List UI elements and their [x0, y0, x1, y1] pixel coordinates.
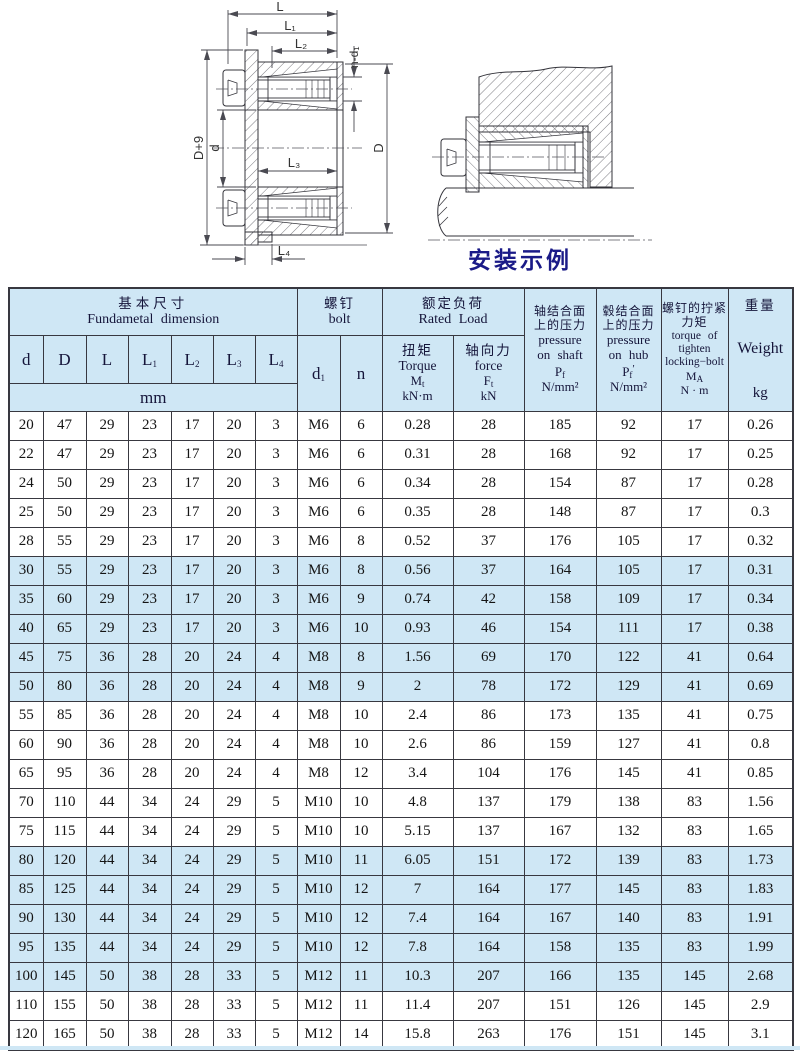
cell: 0.31: [728, 557, 793, 586]
cell: 20: [213, 441, 255, 470]
cell: 75: [9, 818, 43, 847]
dim-label-L3: L₃: [288, 155, 301, 170]
header-tightening-torque: 螺钉的拧紧 力矩 torque of tighten locking−bolt …: [661, 288, 728, 412]
cell: 44: [86, 847, 128, 876]
cell: 29: [86, 470, 128, 499]
unit-mm: mm: [9, 384, 297, 412]
cell: 29: [86, 441, 128, 470]
cell: 17: [661, 528, 728, 557]
header-pressure-on-hub: 毂结合面 上的压力 pressure on hub Pf′ N/mm²: [596, 288, 661, 412]
cell: 28: [453, 499, 524, 528]
table-row: 95135443424295M10127.8164158135831.99: [9, 934, 793, 963]
cell: 164: [524, 557, 596, 586]
cell: 137: [453, 789, 524, 818]
cell: 17: [661, 557, 728, 586]
cell: 29: [86, 412, 128, 441]
cell: 5: [255, 905, 297, 934]
cell: 8: [340, 644, 382, 673]
cell: 20: [213, 586, 255, 615]
cell: 23: [128, 441, 171, 470]
cell: 105: [596, 528, 661, 557]
cell: 11: [340, 963, 382, 992]
cell: 132: [596, 818, 661, 847]
cell: 154: [524, 470, 596, 499]
cell: 29: [213, 905, 255, 934]
dim-label-D9: D+9: [191, 136, 206, 160]
cell: 173: [524, 702, 596, 731]
cell: 12: [340, 934, 382, 963]
cell: 148: [524, 499, 596, 528]
col-n: n: [340, 336, 382, 412]
cell: 95: [9, 934, 43, 963]
cell: 1.83: [728, 876, 793, 905]
cell: 2.9: [728, 992, 793, 1021]
table-row: 2550292317203M660.352814887170.3: [9, 499, 793, 528]
cell: 87: [596, 470, 661, 499]
cell: 3: [255, 557, 297, 586]
cell: 129: [596, 673, 661, 702]
cell: 17: [171, 412, 213, 441]
header-rated-load: 额定负荷 Rated Load: [382, 288, 524, 336]
cell: 3: [255, 586, 297, 615]
cell: M6: [297, 586, 340, 615]
cell: 4: [255, 702, 297, 731]
cell: 83: [661, 905, 728, 934]
installation-example-caption: 安装示例: [440, 241, 600, 275]
cell: 172: [524, 673, 596, 702]
cell: 28: [128, 702, 171, 731]
table-row: 85125443424295M10127164177145831.83: [9, 876, 793, 905]
cell: 24: [171, 905, 213, 934]
cell: 65: [43, 615, 86, 644]
cell: 125: [43, 876, 86, 905]
cell: 3.4: [382, 760, 453, 789]
cell: 33: [213, 992, 255, 1021]
cell: 41: [661, 673, 728, 702]
table-row: 5585362820244M8102.486173135410.75: [9, 702, 793, 731]
cell: 176: [524, 528, 596, 557]
cell: 29: [86, 586, 128, 615]
cell: 10.3: [382, 963, 453, 992]
cell: 17: [171, 615, 213, 644]
cell: 34: [128, 934, 171, 963]
cell: 12: [340, 876, 382, 905]
cell: M6: [297, 557, 340, 586]
cell: 20: [213, 499, 255, 528]
cell: M10: [297, 789, 340, 818]
cell: 28: [453, 412, 524, 441]
cell: 34: [128, 818, 171, 847]
cell: 28: [128, 644, 171, 673]
cell: 17: [661, 499, 728, 528]
cell: 83: [661, 789, 728, 818]
cell: 29: [213, 847, 255, 876]
cell: 11: [340, 992, 382, 1021]
cell: M8: [297, 731, 340, 760]
cell: 29: [213, 789, 255, 818]
cell: 80: [9, 847, 43, 876]
cell: 29: [213, 876, 255, 905]
cell: 78: [453, 673, 524, 702]
cell: 41: [661, 702, 728, 731]
table-row: 5080362820244M89278172129410.69: [9, 673, 793, 702]
cell: 0.34: [728, 586, 793, 615]
cell: 10: [340, 789, 382, 818]
header-pressure-on-shaft: 轴结合面 上的压力 pressure on shaft Pf N/mm²: [524, 288, 596, 412]
cell: 17: [661, 470, 728, 499]
cell: 8: [340, 528, 382, 557]
cell: 17: [171, 557, 213, 586]
cell: 0.38: [728, 615, 793, 644]
cell: 0.32: [728, 528, 793, 557]
cell: 2.4: [382, 702, 453, 731]
cell: M10: [297, 876, 340, 905]
dim-label-L1: L₁: [284, 18, 296, 33]
cell: 168: [524, 441, 596, 470]
cell: 0.64: [728, 644, 793, 673]
technical-drawings: L L₁ L₂ L₃ L₄ n-d₁ D+9 d D: [0, 0, 800, 287]
cell: 4: [255, 760, 297, 789]
cell: 0.28: [382, 412, 453, 441]
cell: 83: [661, 818, 728, 847]
cell: M6: [297, 615, 340, 644]
dim-label-L2: L₂: [295, 36, 307, 51]
cell: 20: [171, 644, 213, 673]
cell: 29: [213, 934, 255, 963]
cell: 6: [340, 441, 382, 470]
cell: 44: [86, 818, 128, 847]
cell: 11: [340, 847, 382, 876]
cell: 24: [9, 470, 43, 499]
cell: M10: [297, 934, 340, 963]
cell: 20: [9, 412, 43, 441]
cell: 47: [43, 441, 86, 470]
cell: 37: [453, 557, 524, 586]
cell: 95: [43, 760, 86, 789]
cell: 24: [171, 818, 213, 847]
cell: 17: [171, 441, 213, 470]
cell: 120: [43, 847, 86, 876]
cell: 5: [255, 876, 297, 905]
cell: 92: [596, 412, 661, 441]
cell: M8: [297, 673, 340, 702]
cell: 28: [9, 528, 43, 557]
cell: 24: [213, 644, 255, 673]
cell: 110: [43, 789, 86, 818]
cell: 176: [524, 760, 596, 789]
cell: M12: [297, 992, 340, 1021]
cell: 28: [128, 760, 171, 789]
cell: 29: [86, 499, 128, 528]
cell: M8: [297, 760, 340, 789]
cell: 0.85: [728, 760, 793, 789]
cell: 7.8: [382, 934, 453, 963]
cell: 65: [9, 760, 43, 789]
cell: 3: [255, 412, 297, 441]
dim-label-L4: L₄: [278, 243, 291, 258]
cell: 115: [43, 818, 86, 847]
cell: 145: [661, 963, 728, 992]
dim-label-d: d: [207, 144, 222, 151]
cell: 5: [255, 847, 297, 876]
cell: 6: [340, 470, 382, 499]
cell: 1.56: [382, 644, 453, 673]
cell: 10: [340, 615, 382, 644]
cell: M6: [297, 441, 340, 470]
cell: 4.8: [382, 789, 453, 818]
header-basic-cn: 基本尺寸: [10, 296, 297, 312]
col-L4: L4: [255, 336, 297, 384]
col-axial-force: 轴向力 force Ft kN: [453, 336, 524, 412]
cell: 25: [9, 499, 43, 528]
cell: 2.68: [728, 963, 793, 992]
cell: 0.26: [728, 412, 793, 441]
cell: 12: [340, 905, 382, 934]
cell: 158: [524, 934, 596, 963]
cell: 137: [453, 818, 524, 847]
cell: 6: [340, 499, 382, 528]
table-row: 6595362820244M8123.4104176145410.85: [9, 760, 793, 789]
cell: 47: [43, 412, 86, 441]
cell: 23: [128, 586, 171, 615]
cell: 5: [255, 992, 297, 1021]
cell: M8: [297, 644, 340, 673]
cell: 140: [596, 905, 661, 934]
cell: 17: [171, 499, 213, 528]
cell: 44: [86, 789, 128, 818]
cell: 110: [9, 992, 43, 1021]
cell: 9: [340, 586, 382, 615]
cell: 12: [340, 760, 382, 789]
cell: 104: [453, 760, 524, 789]
cell: 28: [171, 992, 213, 1021]
cell: 177: [524, 876, 596, 905]
cell: 8: [340, 557, 382, 586]
cell: 105: [596, 557, 661, 586]
cell: 170: [524, 644, 596, 673]
cell: 185: [524, 412, 596, 441]
header-rated-en: Rated Load: [383, 312, 524, 328]
cell: 20: [213, 615, 255, 644]
cell: M6: [297, 412, 340, 441]
cell: 17: [661, 615, 728, 644]
cell: 24: [213, 702, 255, 731]
cell: 0.56: [382, 557, 453, 586]
col-d: d: [9, 336, 43, 384]
table-row: 6090362820244M8102.686159127410.8: [9, 731, 793, 760]
cell: 7: [382, 876, 453, 905]
cell: 50: [9, 673, 43, 702]
cell: 167: [524, 905, 596, 934]
cell: 36: [86, 644, 128, 673]
cell: 20: [213, 412, 255, 441]
cell: 10: [340, 702, 382, 731]
table-row: 80120443424295M10116.05151172139831.73: [9, 847, 793, 876]
cell: 80: [43, 673, 86, 702]
table-row: 4065292317203M6100.9346154111170.38: [9, 615, 793, 644]
col-torque: 扭矩 Torque Mt kN·m: [382, 336, 453, 412]
cell: 3: [255, 470, 297, 499]
cell: 40: [9, 615, 43, 644]
cell: 0.28: [728, 470, 793, 499]
cell: 0.25: [728, 441, 793, 470]
col-D: D: [43, 336, 86, 384]
cell: 0.35: [382, 499, 453, 528]
cell: 154: [524, 615, 596, 644]
cell: 69: [453, 644, 524, 673]
cell: 1.56: [728, 789, 793, 818]
cell: 10: [340, 818, 382, 847]
cell: 44: [86, 934, 128, 963]
cell: 17: [661, 586, 728, 615]
cell: 24: [171, 847, 213, 876]
cell: 24: [171, 789, 213, 818]
cell: 29: [86, 528, 128, 557]
cell: 34: [128, 789, 171, 818]
col-L1: L1: [128, 336, 171, 384]
cell: 34: [128, 905, 171, 934]
table-row: 2247292317203M660.312816892170.25: [9, 441, 793, 470]
cell: 155: [43, 992, 86, 1021]
cell: 92: [596, 441, 661, 470]
cell: 0.3: [728, 499, 793, 528]
cell: 50: [43, 470, 86, 499]
cell: 100: [9, 963, 43, 992]
header-bolt-cn: 螺钉: [298, 296, 382, 312]
cell: 145: [43, 963, 86, 992]
cell: M10: [297, 847, 340, 876]
cell: 24: [171, 934, 213, 963]
header-rated-cn: 额定负荷: [383, 296, 524, 312]
cell: 24: [213, 731, 255, 760]
cell: 41: [661, 731, 728, 760]
spec-table: 基本尺寸 Fundametal dimension 螺钉 bolt 额定负荷 R…: [8, 287, 794, 1051]
cell: 5: [255, 789, 297, 818]
cell: 127: [596, 731, 661, 760]
cell: 60: [9, 731, 43, 760]
table-row: 3560292317203M690.7442158109170.34: [9, 586, 793, 615]
cell: 151: [453, 847, 524, 876]
table-row: 2855292317203M680.5237176105170.32: [9, 528, 793, 557]
cell: 36: [86, 673, 128, 702]
cell: 0.75: [728, 702, 793, 731]
cell: 20: [171, 731, 213, 760]
cell: 2.6: [382, 731, 453, 760]
header-basic-en: Fundametal dimension: [10, 312, 297, 328]
cell: 0.31: [382, 441, 453, 470]
cell: 17: [171, 586, 213, 615]
table-row: 2047292317203M660.282818592170.26: [9, 412, 793, 441]
cell: 50: [43, 499, 86, 528]
cell: 5.15: [382, 818, 453, 847]
col-d1: d1: [297, 336, 340, 412]
cell: 44: [86, 905, 128, 934]
cell: 11.4: [382, 992, 453, 1021]
cell: M10: [297, 818, 340, 847]
cell: 90: [43, 731, 86, 760]
cell: M10: [297, 905, 340, 934]
cell: 2: [382, 673, 453, 702]
cell: 164: [453, 934, 524, 963]
cell: 85: [43, 702, 86, 731]
cell: 10: [340, 731, 382, 760]
cell: 75: [43, 644, 86, 673]
cell: 17: [171, 528, 213, 557]
cell: 159: [524, 731, 596, 760]
cell: 83: [661, 934, 728, 963]
cell: 1.91: [728, 905, 793, 934]
cell: 6: [340, 412, 382, 441]
table-row: 3055292317203M680.5637164105170.31: [9, 557, 793, 586]
cell: 17: [171, 470, 213, 499]
cell: 45: [9, 644, 43, 673]
cell: 5: [255, 818, 297, 847]
cell: 145: [596, 760, 661, 789]
cell: 90: [9, 905, 43, 934]
table-body: 2047292317203M660.282818592170.262247292…: [9, 412, 793, 1051]
cell: 60: [43, 586, 86, 615]
cell: 28: [453, 470, 524, 499]
cell: 24: [213, 673, 255, 702]
cell: 36: [86, 760, 128, 789]
cell: 28: [128, 673, 171, 702]
cell: 1.65: [728, 818, 793, 847]
cell: 145: [661, 992, 728, 1021]
col-L3: L3: [213, 336, 255, 384]
cell: 3: [255, 441, 297, 470]
cell: 9: [340, 673, 382, 702]
cell: 135: [596, 963, 661, 992]
cell: 20: [171, 673, 213, 702]
cell: 34: [128, 847, 171, 876]
cell: 41: [661, 644, 728, 673]
cell: 29: [213, 818, 255, 847]
cell: 164: [453, 905, 524, 934]
cell: 167: [524, 818, 596, 847]
cell: 145: [596, 876, 661, 905]
table-row: 4575362820244M881.5669170122410.64: [9, 644, 793, 673]
cell: 135: [43, 934, 86, 963]
cell: M6: [297, 528, 340, 557]
cell: 23: [128, 615, 171, 644]
cell: 23: [128, 557, 171, 586]
cell: 55: [9, 702, 43, 731]
cell: 37: [453, 528, 524, 557]
cell: 24: [171, 876, 213, 905]
header-bolt-en: bolt: [298, 312, 382, 328]
cell: 0.69: [728, 673, 793, 702]
cell: M12: [297, 963, 340, 992]
table-row: 110155503828335M121111.42071511261452.9: [9, 992, 793, 1021]
cell: 83: [661, 847, 728, 876]
cell: 158: [524, 586, 596, 615]
table-row: 100145503828335M121110.32071661351452.68: [9, 963, 793, 992]
cell: 28: [453, 441, 524, 470]
cell: 5: [255, 963, 297, 992]
col-L: L: [86, 336, 128, 384]
cell: 86: [453, 731, 524, 760]
cell: 50: [86, 992, 128, 1021]
cell: 22: [9, 441, 43, 470]
cell: 36: [86, 702, 128, 731]
cell: 130: [43, 905, 86, 934]
table-row: 75115443424295M10105.15137167132831.65: [9, 818, 793, 847]
cell: 207: [453, 992, 524, 1021]
cell: 135: [596, 702, 661, 731]
cell: 38: [128, 992, 171, 1021]
dim-label-L: L: [276, 0, 283, 14]
cell: 0.8: [728, 731, 793, 760]
